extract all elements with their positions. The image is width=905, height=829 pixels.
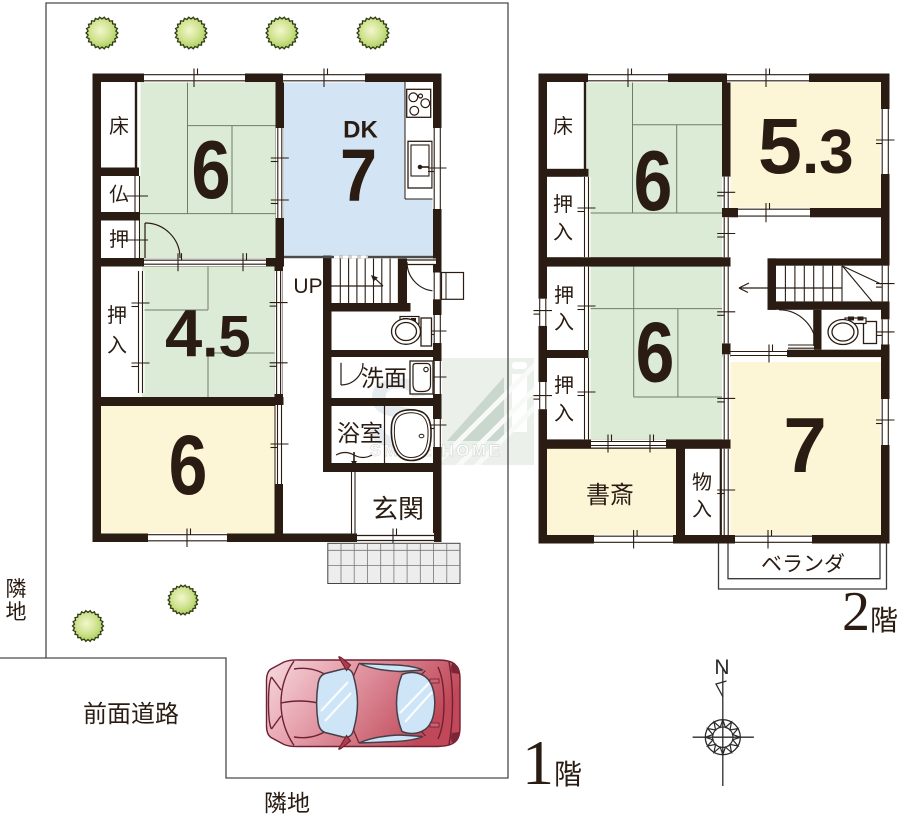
svg-text:入: 入	[107, 335, 127, 357]
svg-text:床: 床	[553, 115, 573, 138]
svg-text:7: 7	[340, 134, 377, 217]
svg-text:浴室: 浴室	[337, 420, 383, 446]
svg-text:物: 物	[692, 471, 712, 494]
svg-text:隣地: 隣地	[264, 790, 310, 816]
svg-text:入: 入	[554, 403, 574, 425]
svg-text:押: 押	[107, 304, 127, 327]
svg-text:地: 地	[6, 601, 27, 624]
svg-text:4.5: 4.5	[165, 297, 251, 372]
svg-text:書斎: 書斎	[586, 482, 634, 509]
svg-text:玄関: 玄関	[372, 494, 424, 524]
svg-text:6: 6	[169, 419, 208, 513]
svg-text:押: 押	[553, 193, 573, 216]
svg-text:入: 入	[553, 222, 573, 244]
svg-text:仏: 仏	[109, 184, 129, 206]
svg-text:床: 床	[109, 115, 129, 138]
svg-text:7: 7	[783, 401, 826, 489]
svg-text:UP: UP	[293, 275, 322, 298]
svg-text:ベランダ: ベランダ	[761, 553, 845, 576]
svg-text:入: 入	[692, 499, 712, 521]
svg-text:押: 押	[554, 374, 574, 397]
svg-text:入: 入	[554, 312, 574, 334]
svg-text:6: 6	[634, 135, 673, 229]
svg-text:押: 押	[109, 228, 129, 251]
svg-text:6: 6	[636, 306, 675, 400]
svg-text:6: 6	[191, 124, 230, 217]
svg-text:隣: 隣	[6, 578, 27, 601]
svg-text:前面道路: 前面道路	[83, 701, 179, 728]
svg-text:N: N	[714, 656, 729, 679]
svg-text:押: 押	[554, 284, 574, 307]
svg-text:洗面: 洗面	[361, 365, 407, 391]
